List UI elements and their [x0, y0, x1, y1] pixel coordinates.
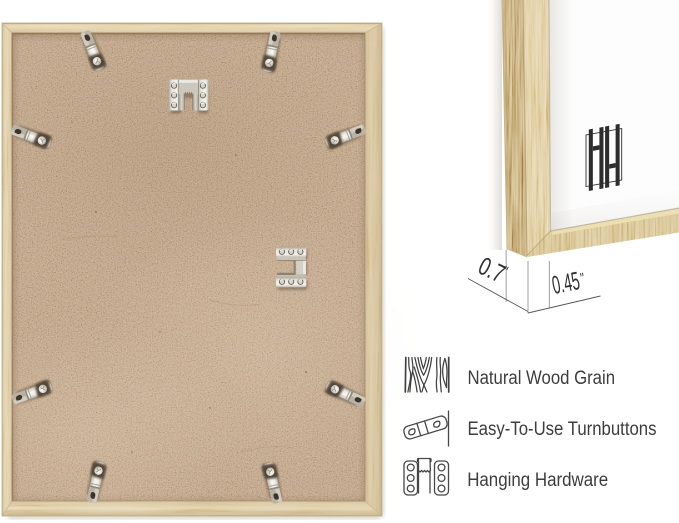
svg-text:Easy-To-Use Turnbuttons: Easy-To-Use Turnbuttons: [468, 419, 657, 440]
svg-text:Hanging Hardware: Hanging Hardware: [467, 470, 608, 491]
svg-text:0.45: 0.45: [550, 267, 582, 300]
svg-text:Natural Wood Grain: Natural Wood Grain: [468, 368, 616, 389]
